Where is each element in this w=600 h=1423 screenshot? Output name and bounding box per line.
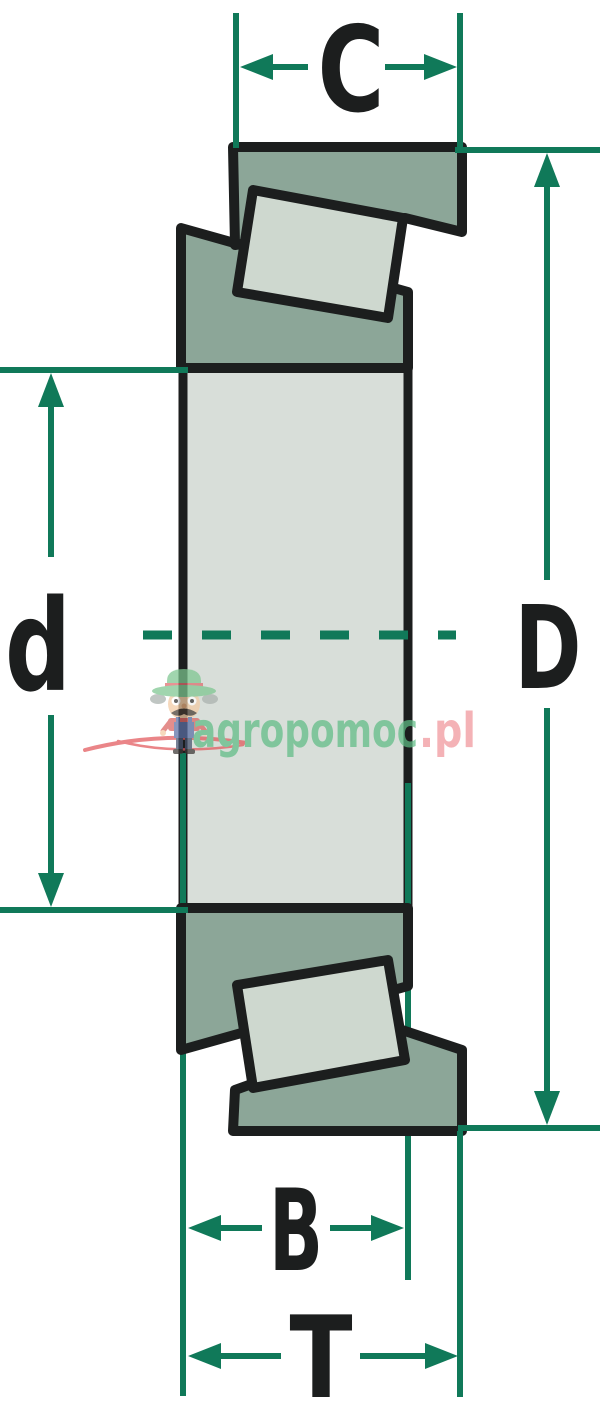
dimension-c: C (236, 2, 460, 148)
roller-top (237, 190, 403, 318)
t-arrowhead-left (188, 1343, 221, 1369)
dimension-d-outer: D (455, 150, 600, 1128)
dim-label-b: B (269, 1165, 323, 1297)
bearing-dimension-diagram: agropomoc .pl C D (0, 0, 600, 1423)
d-outer-arrowhead-down (534, 1091, 560, 1125)
dimension-b: B (188, 1165, 404, 1297)
b-arrowhead-right (371, 1215, 404, 1241)
d-outer-arrowhead-up (534, 153, 560, 187)
dim-label-t: T (290, 1292, 353, 1423)
d-bore-arrowhead-up (38, 373, 64, 407)
dim-label-c: C (318, 2, 385, 140)
roller-bottom (237, 960, 405, 1088)
dim-label-d-outer: D (515, 582, 582, 716)
watermark-brand-green: agropomoc (192, 703, 418, 759)
b-arrowhead-left (188, 1215, 221, 1241)
dim-label-d-bore: d (5, 572, 71, 720)
dimension-t: T (188, 1131, 460, 1423)
c-arrowhead-right (424, 54, 457, 80)
t-arrowhead-right (425, 1343, 458, 1369)
d-bore-arrowhead-down (38, 873, 64, 907)
dimension-d-bore: d (0, 370, 188, 910)
c-arrowhead-left (240, 54, 273, 80)
watermark-brand-pink: .pl (419, 703, 476, 759)
